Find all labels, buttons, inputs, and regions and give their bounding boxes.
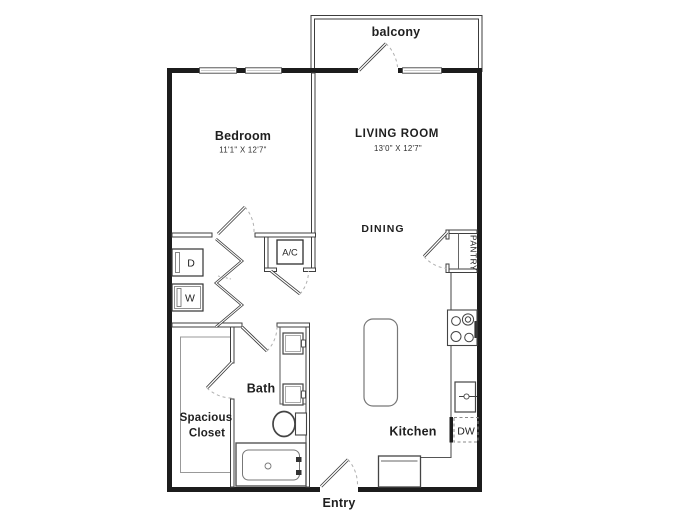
bath-label: Bath [247,382,276,396]
closet-door [207,362,232,398]
wall-ac-right [312,237,316,269]
ac-unit: A/C [277,240,303,264]
entry-label: Entry [323,496,356,510]
vanity-sink-1 [283,333,306,354]
washer: W [172,284,203,311]
bath-door [242,326,277,351]
doors [207,44,447,487]
tub-faucet-icon [296,457,302,462]
wall-bedroom-south-left [172,233,212,237]
wall-closet-right-upper [231,327,235,363]
wall-closet-top [172,323,242,327]
pantry-door [424,233,447,269]
pantry-label: PANTRY [469,235,478,271]
closet-label-line2: Closet [189,428,225,440]
dining-label: DINING [361,223,404,235]
kitchen-island [364,319,398,406]
dishwasher: DW [450,417,479,443]
wall-bottom [167,487,320,492]
sink-faucet-icon [302,340,306,347]
living-room-label: LIVING ROOM [355,128,439,140]
vanity-sink-2 [283,384,306,405]
ac-label: A/C [282,248,298,258]
dryer-label: D [187,258,195,270]
washer-label: W [185,293,195,305]
kitchen-label: Kitchen [389,425,436,439]
sink-faucet-icon [302,391,306,398]
balcony-outline [311,16,482,73]
bathtub [236,443,306,486]
wall-bedroom-south-right [255,233,316,237]
laundry-bifold-doors [216,239,242,327]
closet-shelf-line [181,337,231,473]
wall-pantry-top [446,230,477,234]
ac-closet-door [271,271,309,294]
dishwasher-label: DW [457,426,475,438]
tub-faucet-icon [296,470,302,475]
bedroom-label: Bedroom [215,129,271,143]
room-labels: Bedroom 11'1" X 12'7" LIVING ROOM 13'0" … [180,25,478,510]
floor-plan-canvas: A/C D W [0,0,683,512]
wall-left [167,68,172,492]
bedroom-dimensions: 11'1" X 12'7" [219,146,266,155]
floor-plan-drawing: A/C D W [0,0,683,512]
bedroom-door [218,207,254,234]
kitchen-sink [455,382,477,412]
living-room-dimensions: 13'0" X 12'7" [374,144,422,153]
dryer: D [172,249,203,276]
bath-vanity [280,327,306,405]
balcony-label: balcony [372,25,421,39]
refrigerator [379,456,421,487]
wall-bath-top [277,323,310,327]
balcony-door [359,44,398,71]
wall-bedroom-living-partition [312,73,316,237]
closet-label-line1: Spacious [180,412,233,424]
toilet [273,412,307,437]
entry-door [321,460,358,487]
wall-ac-left [265,237,269,269]
cooktop [448,310,478,346]
